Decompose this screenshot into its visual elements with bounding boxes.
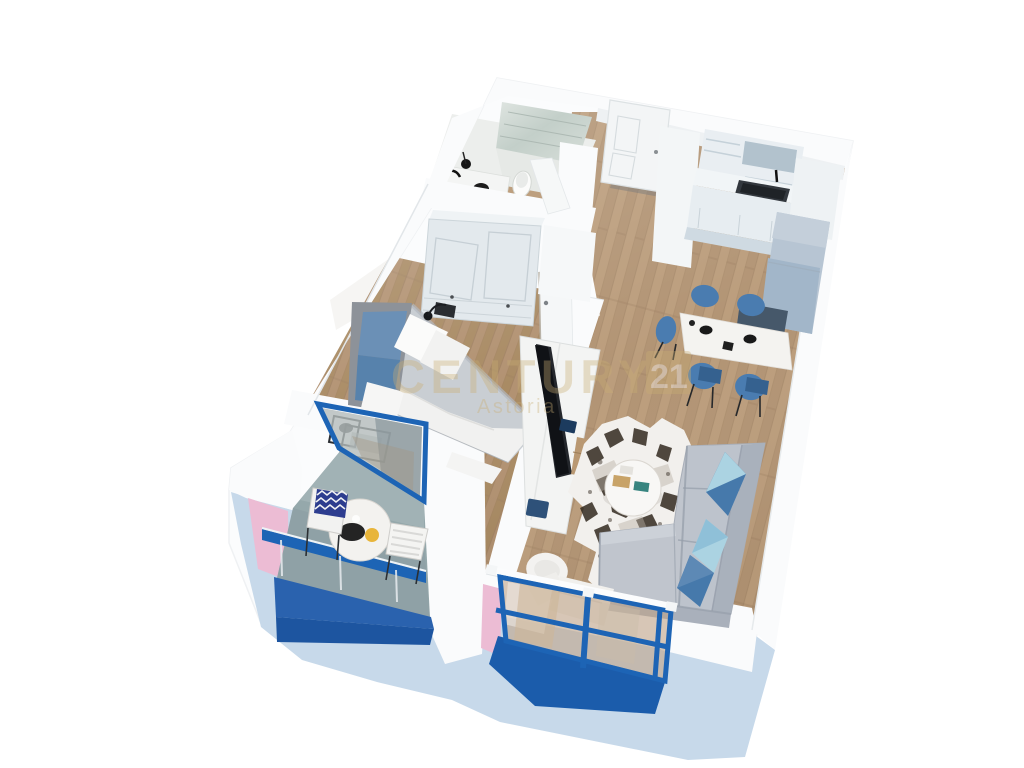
svg-text:21: 21 xyxy=(650,358,688,396)
svg-text:Astoria: Astoria xyxy=(477,396,557,418)
